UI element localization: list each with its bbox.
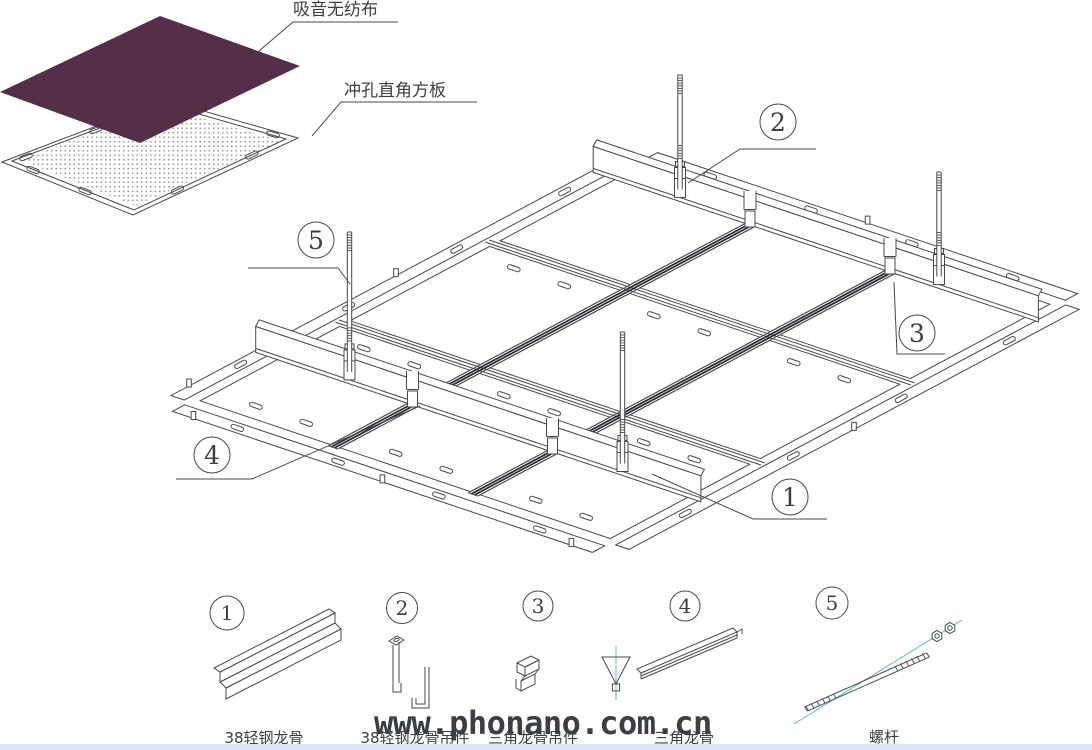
drawing-rect: [745, 211, 755, 227]
legend-item-1: 1 38轻钢龙骨: [210, 596, 341, 747]
drawing-line: [817, 701, 820, 706]
drawing-polygon: [865, 216, 870, 224]
callout-3-number: 3: [909, 319, 925, 348]
part-38-keel-hanger-drawing: [389, 636, 429, 708]
drawing-rect: [885, 258, 895, 274]
callout-5-leader: [248, 268, 350, 284]
drawing-polyline: [416, 667, 425, 704]
acoustic-fabric-sheet: [0, 16, 300, 143]
part-triangle-keel-hanger-drawing: [516, 656, 539, 691]
drawing-rect: [678, 75, 682, 190]
drawing-polyline: [516, 679, 521, 691]
ceiling-installation-diagram-page: 吸音无纺布 冲孔直角方板 2 5 3: [0, 0, 1092, 750]
callout-1-number: 1: [782, 483, 798, 512]
bottom-strip: [0, 744, 1092, 750]
drawing-rect: [548, 438, 558, 454]
drawing-line: [641, 635, 737, 676]
drawing-polygon: [569, 538, 574, 546]
drawing-polyline: [737, 629, 742, 634]
drawing-rect: [884, 238, 896, 257]
drawing-line: [807, 657, 929, 711]
drawing-polygon: [191, 412, 196, 420]
drawing-polygon: [932, 631, 942, 642]
drawing-polygon: [521, 674, 535, 691]
legend-item-5: 5 螺杆: [794, 587, 962, 746]
legend-2-number: 2: [396, 596, 409, 620]
part-screw-rod-drawing: [794, 620, 962, 724]
drawing-polygon: [380, 475, 385, 483]
drawing-rect: [744, 191, 756, 210]
panel-label-leader: [312, 102, 477, 136]
drawing-line: [811, 704, 814, 709]
callout-5: 5: [248, 222, 350, 284]
exploded-panel-detail: [0, 16, 300, 215]
callout-2-number: 2: [770, 108, 786, 137]
drawing-line: [833, 694, 836, 699]
panel-label: 冲孔直角方板: [344, 81, 446, 101]
drawing-polygon: [394, 269, 399, 277]
drawing-polygon: [852, 422, 857, 430]
legend-4-number: 4: [679, 594, 692, 618]
fabric-label-leader: [252, 22, 398, 57]
drawing-rect: [347, 232, 351, 372]
part-triangle-keel-drawing: [602, 628, 742, 700]
drawing-rect: [620, 332, 624, 464]
drawing-polyline: [393, 683, 401, 692]
part-5-label: 螺杆: [869, 728, 899, 746]
callout-5-number: 5: [308, 226, 324, 255]
fabric-label: 吸音无纺布: [293, 0, 378, 20]
legend-5-number: 5: [826, 591, 839, 615]
drawing-line: [828, 696, 831, 701]
drawing-polygon: [187, 379, 192, 387]
drawing-polygon: [637, 628, 737, 673]
drawing-rect: [407, 371, 419, 390]
drawing-line: [805, 653, 927, 707]
assembly-drawing: 吸音无纺布 冲孔直角方板 2 5 3: [0, 0, 1092, 750]
drawing-rect: [408, 391, 418, 407]
drawing-line: [641, 638, 737, 679]
screw-rod-threads-and-nuts: [806, 623, 955, 711]
legend-3-number: 3: [532, 594, 545, 618]
legend-1-number: 1: [221, 601, 234, 625]
drawing-polygon: [389, 636, 404, 645]
callout-4-number: 4: [204, 441, 220, 470]
drawing-line: [822, 699, 825, 704]
ceiling-grid-isometric: [171, 75, 1079, 552]
drawing-polyline: [412, 667, 429, 708]
drawing-rect: [547, 418, 559, 437]
watermark-text: www.phonano.com.cn: [374, 704, 712, 742]
drawing-line: [927, 653, 930, 657]
drawing-polygon: [945, 623, 955, 634]
